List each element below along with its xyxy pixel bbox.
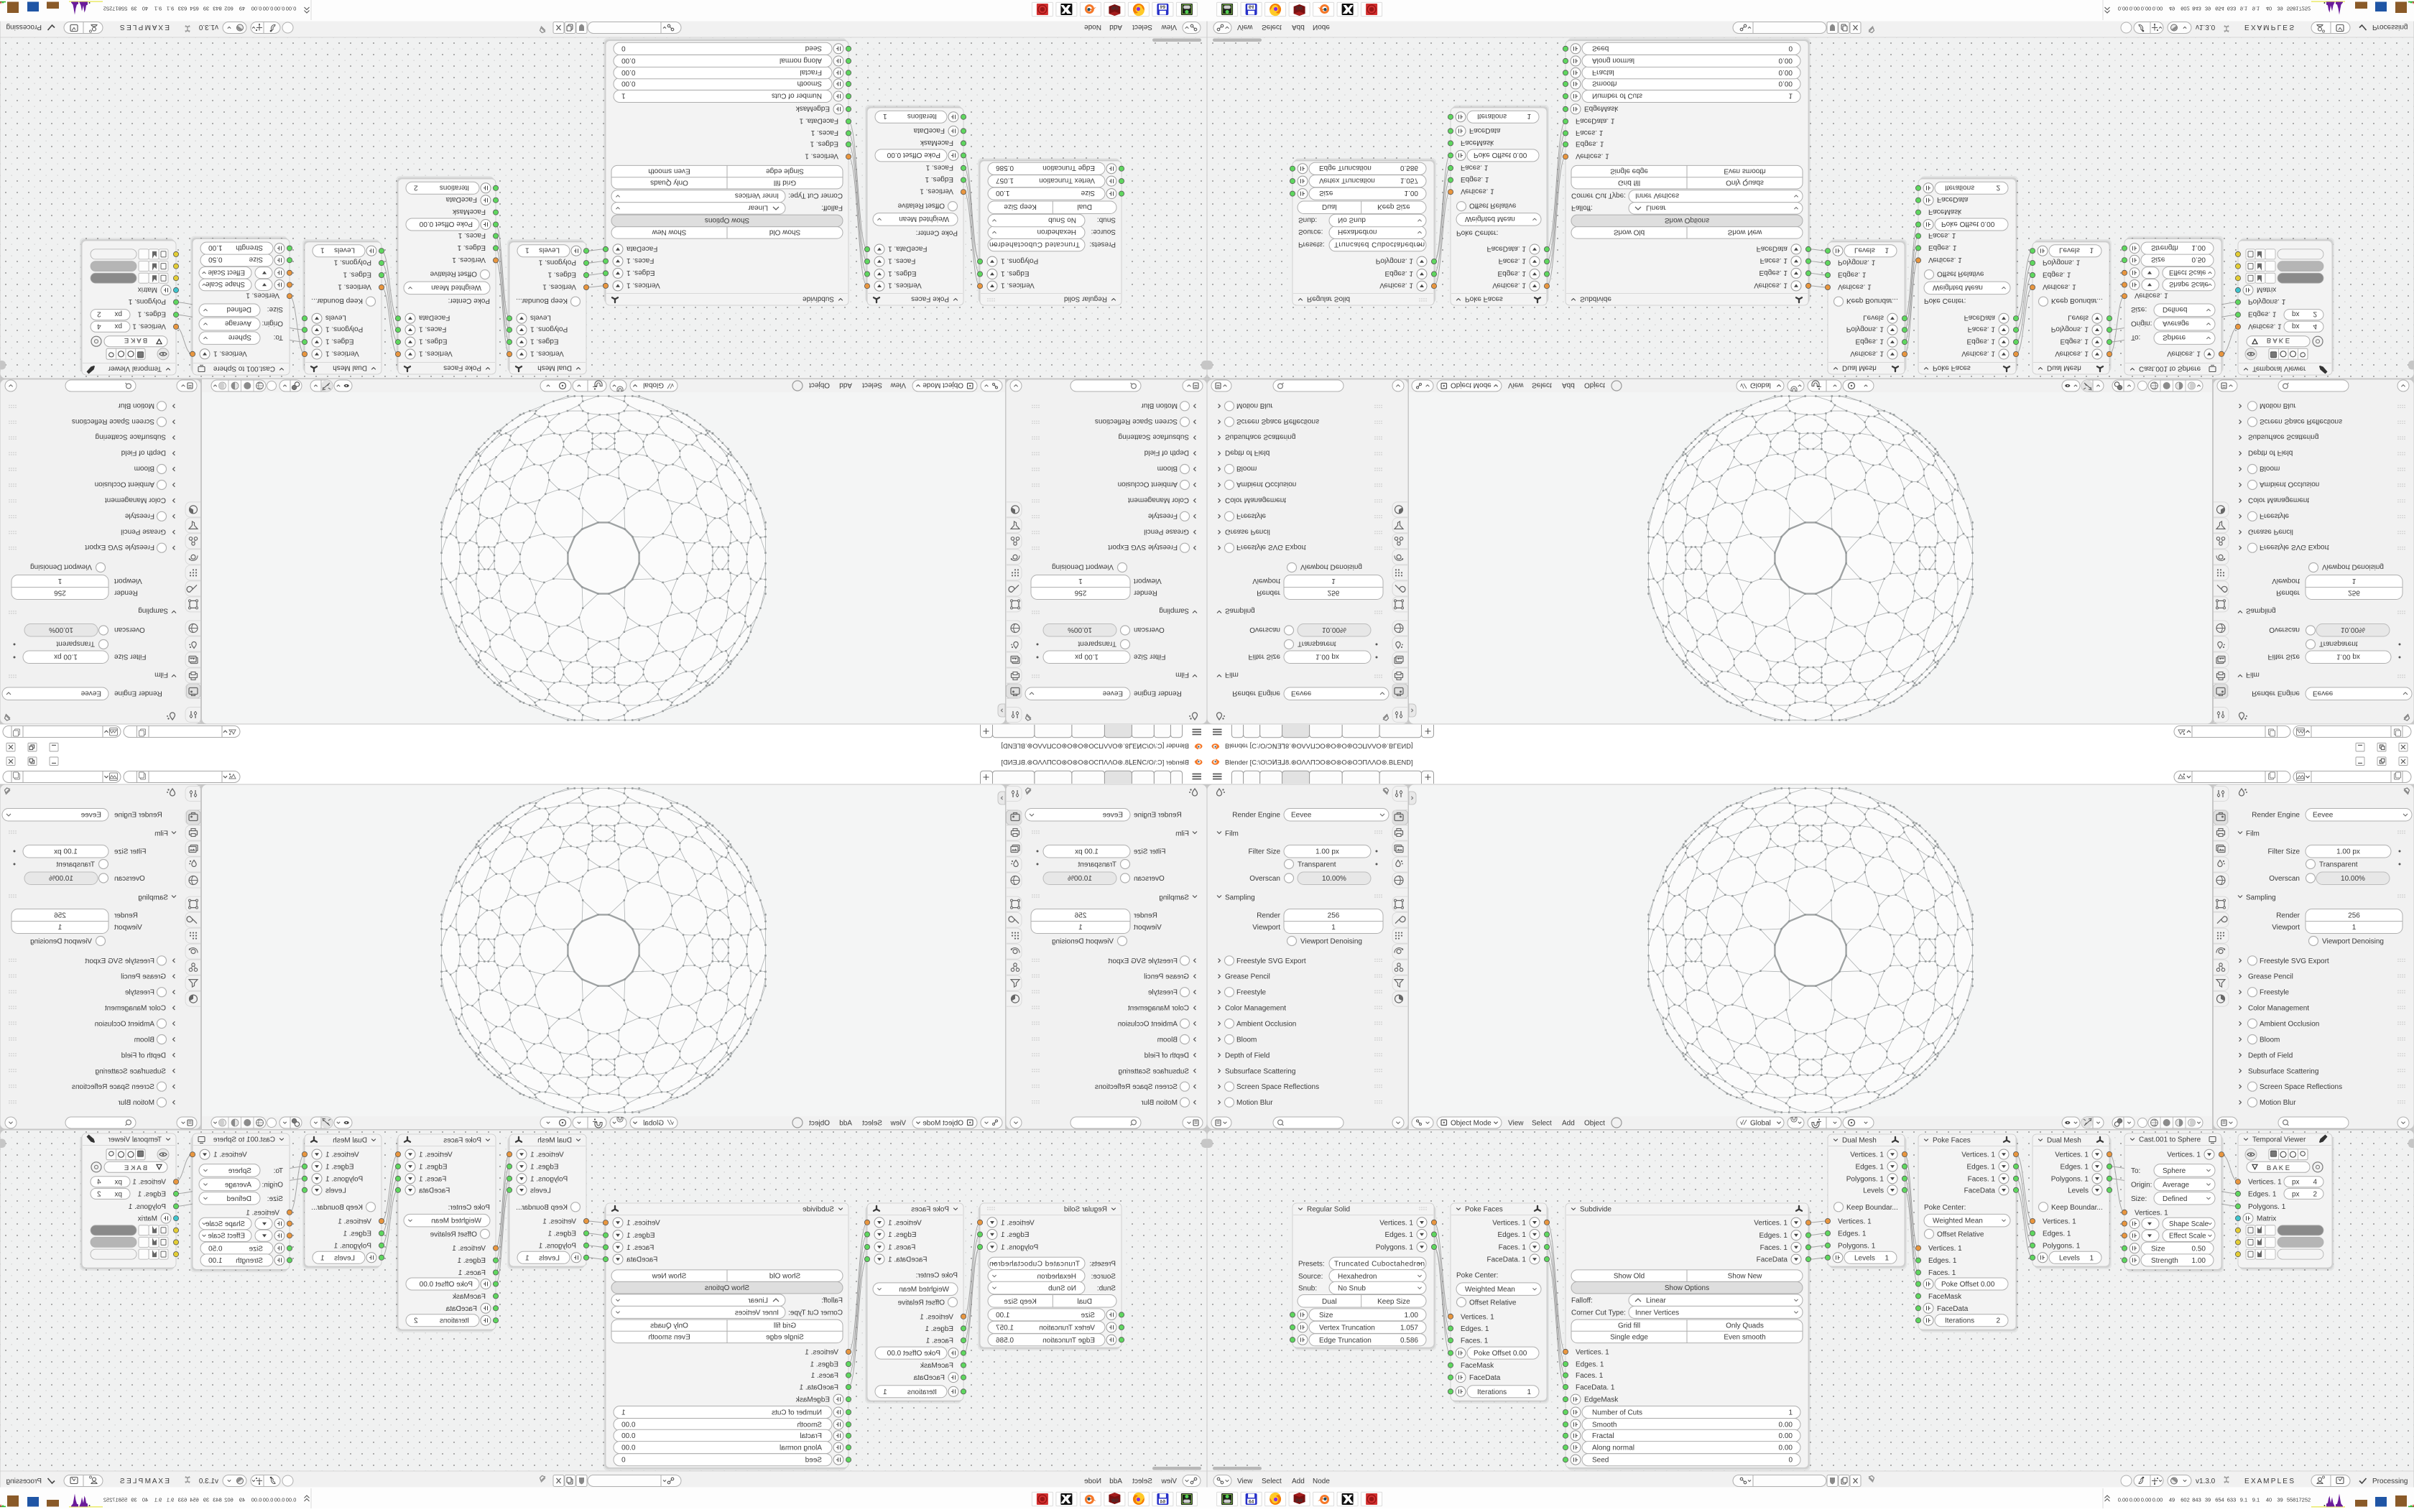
- svg-text:Levels: Levels: [1854, 1254, 1875, 1262]
- svg-text:Polygons. 1: Polygons. 1: [1846, 1175, 1885, 1183]
- svg-text:Motion Blur: Motion Blur: [1236, 1099, 1273, 1107]
- svg-text:Seed: Seed: [1592, 1457, 1609, 1465]
- svg-text:Render Engine: Render Engine: [2252, 812, 2300, 820]
- svg-text:633: 633: [2227, 1497, 2237, 1503]
- svg-text:Vertices. 1: Vertices. 1: [1850, 1151, 1884, 1159]
- svg-text:Color Management: Color Management: [1225, 1005, 1286, 1013]
- svg-text:Weighted Mean: Weighted Mean: [1465, 1286, 1515, 1294]
- svg-text:Eevee: Eevee: [1291, 812, 1312, 820]
- svg-text:Along normal: Along normal: [1592, 1444, 1634, 1452]
- svg-text:Only Quads: Only Quads: [1726, 1322, 1764, 1330]
- svg-text:Screen Space Reflections: Screen Space Reflections: [2260, 1083, 2342, 1091]
- svg-text:FaceData: FaceData: [1757, 1256, 1788, 1264]
- svg-text:Object: Object: [1584, 1120, 1605, 1128]
- svg-text:Edges. 1: Edges. 1: [1838, 1230, 1867, 1238]
- svg-text:Presets:: Presets:: [1298, 1261, 1325, 1268]
- svg-text:Ambient Occlusion: Ambient Occlusion: [2260, 1021, 2319, 1029]
- svg-text:Global: Global: [1750, 1120, 1771, 1128]
- svg-text:Levels: Levels: [1863, 1187, 1884, 1195]
- svg-text:Single edge: Single edge: [1610, 1334, 1648, 1342]
- svg-text:Polygons. 1: Polygons. 1: [2248, 1203, 2286, 1211]
- svg-text:Freestyle SVG Export: Freestyle SVG Export: [1236, 957, 1306, 965]
- svg-text:Show New: Show New: [1728, 1272, 1763, 1280]
- svg-text:Render Engine: Render Engine: [1232, 812, 1280, 820]
- svg-text:Edges. 1: Edges. 1: [2061, 1163, 2089, 1171]
- svg-text:View: View: [1508, 1120, 1524, 1128]
- svg-text:Vertices. 1: Vertices. 1: [2055, 1151, 2089, 1159]
- svg-text:4: 4: [2313, 1179, 2317, 1187]
- svg-text:Viewport Denoising: Viewport Denoising: [2322, 938, 2384, 946]
- svg-text:0.00: 0.00: [2118, 1497, 2129, 1503]
- svg-text:Dual Mesh: Dual Mesh: [1842, 1137, 1877, 1145]
- svg-text:Vertices. 1: Vertices. 1: [1754, 1220, 1788, 1228]
- svg-text:Poke Faces: Poke Faces: [1465, 1206, 1503, 1214]
- svg-text:0.50: 0.50: [2192, 1245, 2206, 1253]
- svg-text:Overscan: Overscan: [2269, 875, 2300, 883]
- svg-text:E X A M P L E S: E X A M P L E S: [2244, 1478, 2294, 1485]
- svg-text:10.00%: 10.00%: [2341, 875, 2365, 883]
- svg-text:654: 654: [2215, 1497, 2224, 1503]
- svg-text:0.00: 0.00: [1779, 1432, 1793, 1440]
- svg-text:Edges. 1: Edges. 1: [1385, 1231, 1414, 1239]
- svg-text:Poke Center:: Poke Center:: [1456, 1271, 1498, 1279]
- svg-text:Faces. 1: Faces. 1: [1461, 1337, 1489, 1345]
- svg-text:1: 1: [1331, 924, 1336, 932]
- svg-text:843: 843: [2192, 1497, 2201, 1503]
- svg-text:49: 49: [2169, 1497, 2175, 1503]
- svg-text:64: 64: [1249, 1500, 1254, 1505]
- svg-text:55817252: 55817252: [2287, 1497, 2311, 1503]
- svg-text:Even smooth: Even smooth: [1724, 1334, 1765, 1342]
- svg-text:Dual: Dual: [1322, 1298, 1337, 1306]
- svg-text:Viewport Denoising: Viewport Denoising: [1300, 938, 1362, 946]
- svg-text:256: 256: [2348, 912, 2360, 920]
- svg-text:Effect Scale: Effect Scale: [2169, 1233, 2206, 1240]
- svg-text:Vertices. 1: Vertices. 1: [2135, 1209, 2168, 1217]
- svg-text:Average: Average: [2163, 1181, 2190, 1189]
- svg-text:FaceData: FaceData: [1937, 1305, 1969, 1313]
- svg-text:Processing: Processing: [2372, 1478, 2408, 1485]
- svg-text:Edges. 1: Edges. 1: [1856, 1163, 1885, 1171]
- svg-text:Snub:: Snub:: [1298, 1285, 1317, 1293]
- svg-text:Depth of Field: Depth of Field: [2248, 1052, 2293, 1059]
- svg-text:px: px: [2292, 1179, 2300, 1187]
- svg-text:FaceMask: FaceMask: [1928, 1293, 1962, 1301]
- svg-text:Transparent: Transparent: [1298, 861, 1336, 869]
- svg-text:Render: Render: [2276, 912, 2300, 920]
- svg-text:Edges. 1: Edges. 1: [2248, 1190, 2277, 1198]
- svg-text:2: 2: [1996, 1317, 2000, 1325]
- svg-text:Freestyle: Freestyle: [1236, 989, 1267, 997]
- svg-text:Cast.001 to Sphere: Cast.001 to Sphere: [2139, 1136, 2201, 1144]
- svg-text:Polygons. 1: Polygons. 1: [2043, 1242, 2081, 1250]
- svg-text:0.00: 0.00: [1779, 1444, 1793, 1452]
- svg-text:Transparent: Transparent: [2319, 861, 2358, 869]
- svg-text:Motion Blur: Motion Blur: [2260, 1099, 2296, 1107]
- svg-text:Vertices. 1: Vertices. 1: [2043, 1218, 2076, 1226]
- svg-text:Ambient Occlusion: Ambient Occlusion: [1236, 1021, 1296, 1029]
- svg-text:Keep Boundar...: Keep Boundar...: [1846, 1204, 1898, 1212]
- svg-text:Grid fill: Grid fill: [1618, 1322, 1640, 1330]
- svg-text:Select: Select: [1532, 1120, 1552, 1128]
- svg-text:0.00: 0.00: [2129, 1497, 2140, 1503]
- svg-text:Edges. 1: Edges. 1: [1967, 1163, 1996, 1171]
- svg-text:Sphere: Sphere: [2163, 1167, 2186, 1175]
- svg-text:FaceData. 1: FaceData. 1: [1487, 1256, 1527, 1264]
- svg-text:40: 40: [2266, 1497, 2272, 1503]
- svg-text:Grease Pencil: Grease Pencil: [2248, 973, 2293, 981]
- svg-text:Keep Size: Keep Size: [1377, 1298, 1410, 1306]
- svg-text:Bloom: Bloom: [1236, 1036, 1257, 1044]
- svg-text:Levels: Levels: [2059, 1254, 2080, 1262]
- svg-text:1: 1: [1788, 1409, 1793, 1417]
- svg-text:1: 1: [1885, 1254, 1889, 1262]
- svg-text:Edges. 1: Edges. 1: [1576, 1361, 1604, 1369]
- svg-text:1: 1: [2089, 1254, 2094, 1262]
- svg-text:Truncated Cuboctahedron: Truncated Cuboctahedron: [1334, 1261, 1425, 1268]
- svg-text:FaceMask: FaceMask: [1461, 1362, 1494, 1370]
- svg-text:Origin:: Origin:: [2131, 1181, 2152, 1189]
- svg-text:Show Options: Show Options: [1665, 1284, 1709, 1292]
- svg-text:Blender [C:\O\ϽͶƎ⅃8.⊛ΟΛΛΠϽΟ⊛Ο⊛: Blender [C:\O\ϽͶƎ⅃8.⊛ΟΛΛΠϽΟ⊛Ο⊛Ο⊛ΟϽΠΛΛΟ⊛.…: [1225, 759, 1413, 766]
- svg-text:Filter Size: Filter Size: [2268, 848, 2300, 856]
- svg-text:Freestyle SVG Export: Freestyle SVG Export: [2260, 957, 2329, 965]
- svg-text:Poke Faces: Poke Faces: [1933, 1137, 1971, 1145]
- svg-text:1.00 px: 1.00 px: [2336, 848, 2360, 856]
- svg-text:Film: Film: [1225, 830, 1239, 838]
- svg-text:Faces. 1: Faces. 1: [1499, 1244, 1527, 1252]
- svg-text:Inner Vertices: Inner Vertices: [1635, 1309, 1679, 1317]
- svg-text:Depth of Field: Depth of Field: [1225, 1052, 1270, 1059]
- svg-text:Faces. 1: Faces. 1: [1968, 1175, 1996, 1183]
- svg-text:Fractal: Fractal: [1592, 1432, 1614, 1440]
- svg-text:Edges. 1: Edges. 1: [1461, 1325, 1489, 1333]
- svg-text:1: 1: [1527, 1388, 1531, 1396]
- svg-text:9.1: 9.1: [2240, 1497, 2247, 1503]
- svg-text:0.00: 0.00: [1779, 1421, 1793, 1429]
- svg-text:1.057: 1.057: [1400, 1324, 1418, 1332]
- svg-text:Dual Mesh: Dual Mesh: [2047, 1137, 2081, 1145]
- svg-text:v1.3.0: v1.3.0: [2196, 1478, 2216, 1485]
- svg-text:256: 256: [1328, 912, 1340, 920]
- svg-text:Vertices. 1: Vertices. 1: [2167, 1151, 2201, 1159]
- svg-text:Vertices. 1: Vertices. 1: [2248, 1179, 2282, 1187]
- svg-text:Poke Center:: Poke Center:: [1924, 1204, 1966, 1212]
- svg-text:Offset Relative: Offset Relative: [1937, 1230, 1984, 1238]
- svg-text:Levels: Levels: [2068, 1187, 2089, 1195]
- svg-text:Subsurface Scattering: Subsurface Scattering: [2248, 1067, 2318, 1075]
- svg-text:FaceData: FaceData: [1964, 1187, 1996, 1195]
- svg-text:View: View: [1237, 1478, 1253, 1485]
- svg-text:Iterations: Iterations: [1945, 1317, 1974, 1325]
- svg-text:Corner Cut Type:: Corner Cut Type:: [1571, 1309, 1626, 1317]
- svg-text:Temporal Viewer: Temporal Viewer: [2252, 1136, 2306, 1144]
- svg-text:Polygons. 1: Polygons. 1: [2051, 1175, 2089, 1183]
- svg-text:Size: Size: [2151, 1245, 2165, 1253]
- svg-text:Screen Space Reflections: Screen Space Reflections: [1236, 1083, 1319, 1091]
- svg-text:2: 2: [2313, 1190, 2317, 1198]
- svg-text:No Snub: No Snub: [1338, 1285, 1366, 1293]
- svg-text:EdgeMask: EdgeMask: [1584, 1396, 1619, 1404]
- svg-text:Defined: Defined: [2163, 1195, 2187, 1203]
- svg-text:Filter Size: Filter Size: [1249, 848, 1281, 856]
- svg-text:602: 602: [2181, 1497, 2190, 1503]
- svg-text:Offset Relative: Offset Relative: [1469, 1299, 1517, 1307]
- svg-text:Object Mode: Object Mode: [1451, 1120, 1492, 1128]
- svg-text:Film: Film: [2246, 830, 2260, 838]
- svg-text:Overscan: Overscan: [1249, 875, 1280, 883]
- svg-text:Vertex Truncation: Vertex Truncation: [1319, 1324, 1375, 1332]
- svg-text:Color Management: Color Management: [2248, 1005, 2309, 1013]
- svg-text:Edge Truncation: Edge Truncation: [1319, 1337, 1372, 1345]
- svg-text:Sampling: Sampling: [1225, 894, 1255, 902]
- svg-text:Vertices. 1: Vertices. 1: [1379, 1219, 1413, 1227]
- svg-text:Polygons. 1: Polygons. 1: [1376, 1244, 1414, 1252]
- svg-text:Node: Node: [1313, 1478, 1330, 1485]
- svg-text:Freestyle: Freestyle: [2260, 989, 2290, 997]
- svg-text:Number of Cuts: Number of Cuts: [1592, 1409, 1642, 1417]
- svg-text:Subsurface Scattering: Subsurface Scattering: [1225, 1067, 1295, 1075]
- svg-text:Weighted Mean: Weighted Mean: [1933, 1218, 1983, 1225]
- svg-text:10.00%: 10.00%: [1322, 875, 1346, 883]
- svg-text:Vertices. 1: Vertices. 1: [1461, 1313, 1494, 1321]
- svg-text:Smooth: Smooth: [1592, 1421, 1617, 1429]
- svg-text:Faces. 1: Faces. 1: [1576, 1372, 1604, 1380]
- svg-text:Hexahedron: Hexahedron: [1338, 1273, 1377, 1281]
- svg-text:1: 1: [2352, 924, 2357, 932]
- svg-text:Source:: Source:: [1298, 1273, 1323, 1281]
- svg-text:Poke Offset 0.00: Poke Offset 0.00: [1474, 1350, 1527, 1358]
- svg-text:Polygons. 1: Polygons. 1: [1838, 1242, 1876, 1250]
- svg-text:0.00: 0.00: [2141, 1497, 2152, 1503]
- svg-text:Edges. 1: Edges. 1: [1928, 1257, 1957, 1265]
- svg-text:Size: Size: [1319, 1312, 1333, 1319]
- svg-text:0.586: 0.586: [1400, 1337, 1418, 1345]
- svg-text:Shape Scale: Shape Scale: [2169, 1220, 2209, 1228]
- svg-text:0.00: 0.00: [2152, 1497, 2163, 1503]
- svg-text:Faces. 1: Faces. 1: [1928, 1269, 1956, 1277]
- svg-text:Viewport: Viewport: [1252, 924, 1280, 932]
- svg-text:39: 39: [2277, 1497, 2283, 1503]
- svg-text:Vertices. 1: Vertices. 1: [1961, 1151, 1995, 1159]
- svg-text:1.00 px: 1.00 px: [1315, 848, 1339, 856]
- svg-text:Regular Solid: Regular Solid: [1307, 1206, 1350, 1214]
- svg-text:39: 39: [2205, 1497, 2211, 1503]
- svg-text:Bloom: Bloom: [2260, 1036, 2280, 1044]
- svg-text:Add: Add: [1562, 1120, 1575, 1128]
- svg-text:Select: Select: [1262, 1478, 1282, 1485]
- svg-text:Vertices. 1: Vertices. 1: [1576, 1348, 1609, 1356]
- svg-text:1.00: 1.00: [2192, 1257, 2206, 1265]
- svg-text:Vertices. 1: Vertices. 1: [1492, 1219, 1526, 1227]
- svg-text:Poke Offset 0.00: Poke Offset 0.00: [1941, 1281, 1995, 1289]
- svg-text:Add: Add: [1292, 1478, 1305, 1485]
- svg-text:Keep Boundar...: Keep Boundar...: [2051, 1204, 2103, 1212]
- svg-text:Falloff:: Falloff:: [1571, 1297, 1593, 1305]
- svg-text:Grease Pencil: Grease Pencil: [1225, 973, 1270, 981]
- svg-text:Viewport: Viewport: [2272, 924, 2300, 932]
- svg-text:Sampling: Sampling: [2246, 894, 2276, 902]
- svg-text:Subdivide: Subdivide: [1580, 1206, 1611, 1214]
- svg-text:Faces. 1: Faces. 1: [1760, 1244, 1788, 1252]
- svg-text:Strength: Strength: [2151, 1257, 2178, 1265]
- svg-text:Edges. 1: Edges. 1: [1498, 1231, 1527, 1239]
- svg-text:Iterations: Iterations: [1477, 1388, 1507, 1396]
- svg-text:Vertices. 1: Vertices. 1: [1928, 1245, 1962, 1253]
- svg-text:FaceData. 1: FaceData. 1: [1576, 1384, 1615, 1392]
- svg-text:1.00: 1.00: [1405, 1312, 1419, 1319]
- svg-text:9.1: 9.1: [2252, 1497, 2260, 1503]
- svg-text:Eevee: Eevee: [2313, 812, 2334, 820]
- svg-text:SW: SW: [1295, 1498, 1303, 1503]
- svg-text:0: 0: [1788, 1457, 1793, 1465]
- svg-text:Size:: Size:: [2131, 1195, 2147, 1203]
- svg-text:Edges. 1: Edges. 1: [1759, 1232, 1788, 1240]
- svg-text:FaceData: FaceData: [1469, 1374, 1501, 1382]
- svg-text:Linear: Linear: [1646, 1297, 1666, 1305]
- svg-text:To:: To:: [2131, 1167, 2140, 1175]
- svg-text:px: px: [2292, 1190, 2300, 1198]
- svg-text:Render: Render: [1257, 912, 1280, 920]
- svg-text:Show Old: Show Old: [1614, 1272, 1645, 1280]
- svg-text:B A K E: B A K E: [2267, 1164, 2290, 1172]
- svg-text:Edges. 1: Edges. 1: [2043, 1230, 2071, 1238]
- svg-text:Matrix: Matrix: [2257, 1215, 2276, 1223]
- svg-text:Vertices. 1: Vertices. 1: [1838, 1218, 1872, 1226]
